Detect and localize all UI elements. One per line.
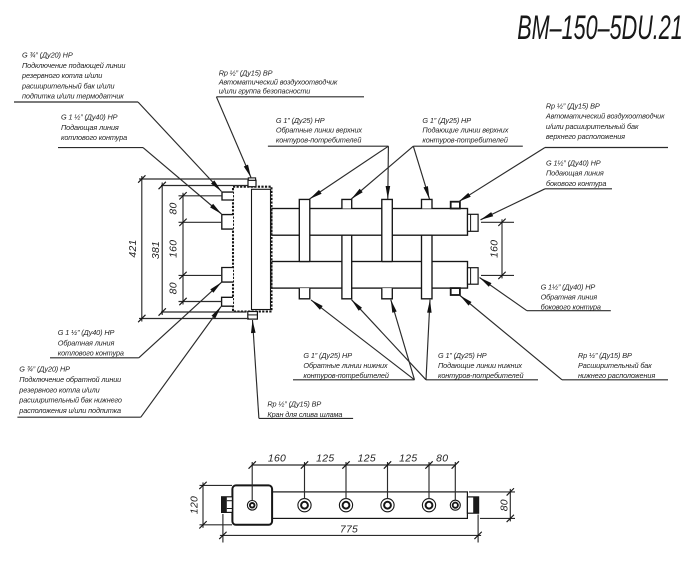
- svg-text:Подающая линия: Подающая линия: [546, 169, 604, 178]
- svg-text:контуров-потребителей: контуров-потребителей: [303, 371, 388, 380]
- svg-text:421: 421: [128, 239, 139, 257]
- svg-text:G 1½” (Ду40) НР: G 1½” (Ду40) НР: [541, 283, 596, 292]
- svg-text:G 1” (Ду25) НР: G 1” (Ду25) НР: [303, 351, 352, 360]
- svg-text:подпитка и/или термодатчик: подпитка и/или термодатчик: [22, 92, 124, 101]
- svg-text:нижнего расположения: нижнего расположения: [578, 371, 655, 380]
- svg-text:и/или группа безопасности: и/или группа безопасности: [219, 87, 311, 96]
- svg-text:Автоматический воздухоотводчик: Автоматический воздухоотводчик: [218, 78, 338, 87]
- svg-text:Rp ½” (Ду15) ВР: Rp ½” (Ду15) ВР: [219, 68, 273, 77]
- svg-text:160: 160: [489, 240, 500, 258]
- svg-text:G 1” (Ду25) НР: G 1” (Ду25) НР: [438, 351, 487, 360]
- svg-text:G 1 ½” (Ду40) НР: G 1 ½” (Ду40) НР: [58, 328, 115, 337]
- svg-text:Кран для слива шлама: Кран для слива шлама: [267, 410, 342, 419]
- svg-text:котлового контура: котлового контура: [61, 133, 127, 142]
- svg-text:G ¾” (Ду20) НР: G ¾” (Ду20) НР: [22, 51, 73, 60]
- svg-text:125: 125: [358, 454, 376, 465]
- svg-text:160: 160: [169, 240, 180, 258]
- svg-text:G 1” (Ду25) НР: G 1” (Ду25) НР: [276, 116, 325, 125]
- svg-text:бокового контура: бокового контура: [546, 179, 606, 188]
- svg-text:Обратные линии верхних: Обратные линии верхних: [276, 126, 363, 135]
- svg-text:125: 125: [316, 454, 334, 465]
- svg-text:Подающие линии нижних: Подающие линии нижних: [438, 361, 522, 370]
- svg-text:резервного котла и/или: резервного котла и/или: [18, 385, 99, 394]
- svg-text:Обратная линия: Обратная линия: [58, 338, 115, 347]
- svg-text:Автоматический воздухоотводчик: Автоматический воздухоотводчик: [545, 112, 665, 121]
- svg-text:G 1” (Ду25) НР: G 1” (Ду25) НР: [422, 116, 471, 125]
- svg-text:расширительный бак нижнего: расширительный бак нижнего: [18, 396, 122, 405]
- svg-text:верхнего расположения: верхнего расположения: [546, 132, 625, 141]
- svg-text:Обратные линии нижних: Обратные линии нижних: [303, 361, 388, 370]
- svg-text:котлового контура: котлового контура: [58, 349, 124, 358]
- svg-text:Подключение обратной линии: Подключение обратной линии: [19, 375, 121, 384]
- svg-text:расположения и/или подпитка: расположения и/или подпитка: [18, 406, 121, 415]
- svg-text:80: 80: [169, 282, 180, 294]
- svg-text:Расширительный бак: Расширительный бак: [578, 361, 652, 370]
- svg-text:G 1½” (Ду40) НР: G 1½” (Ду40) НР: [546, 158, 601, 167]
- svg-text:Rp ½” (Ду15) ВР: Rp ½” (Ду15) ВР: [578, 351, 632, 360]
- svg-text:Rp ½” (Ду15) ВР: Rp ½” (Ду15) ВР: [267, 400, 321, 409]
- svg-text:775: 775: [340, 525, 358, 536]
- svg-text:Подающая линия: Подающая линия: [61, 123, 119, 132]
- svg-text:контуров-потребителей: контуров-потребителей: [438, 371, 523, 380]
- svg-text:Подающие линии верхних: Подающие линии верхних: [422, 126, 508, 135]
- svg-text:Обратная линия: Обратная линия: [541, 293, 598, 302]
- svg-text:G ¾” (Ду20) НР: G ¾” (Ду20) НР: [19, 365, 70, 374]
- svg-text:Подключение подающей линии: Подключение подающей линии: [22, 61, 125, 70]
- svg-text:80: 80: [500, 499, 511, 511]
- svg-text:расширительный бак и/или: расширительный бак и/или: [21, 81, 114, 90]
- svg-text:120: 120: [190, 496, 201, 514]
- svg-text:80: 80: [169, 202, 180, 214]
- svg-text:контуров-потребителей: контуров-потребителей: [422, 135, 507, 144]
- svg-text:Rp ½” (Ду15) ВР: Rp ½” (Ду15) ВР: [546, 101, 600, 110]
- svg-text:контуров-потребителей: контуров-потребителей: [276, 135, 361, 144]
- svg-text:381: 381: [151, 241, 162, 259]
- svg-text:резервного котла и/или: резервного котла и/или: [21, 71, 102, 80]
- svg-text:125: 125: [399, 454, 417, 465]
- svg-text:BM–150–5DU.21: BM–150–5DU.21: [517, 9, 683, 47]
- svg-text:80: 80: [436, 454, 448, 465]
- svg-text:и/или расширительный бак: и/или расширительный бак: [546, 122, 639, 131]
- svg-text:160: 160: [268, 454, 286, 465]
- svg-text:G 1 ½” (Ду40) НР: G 1 ½” (Ду40) НР: [61, 113, 118, 122]
